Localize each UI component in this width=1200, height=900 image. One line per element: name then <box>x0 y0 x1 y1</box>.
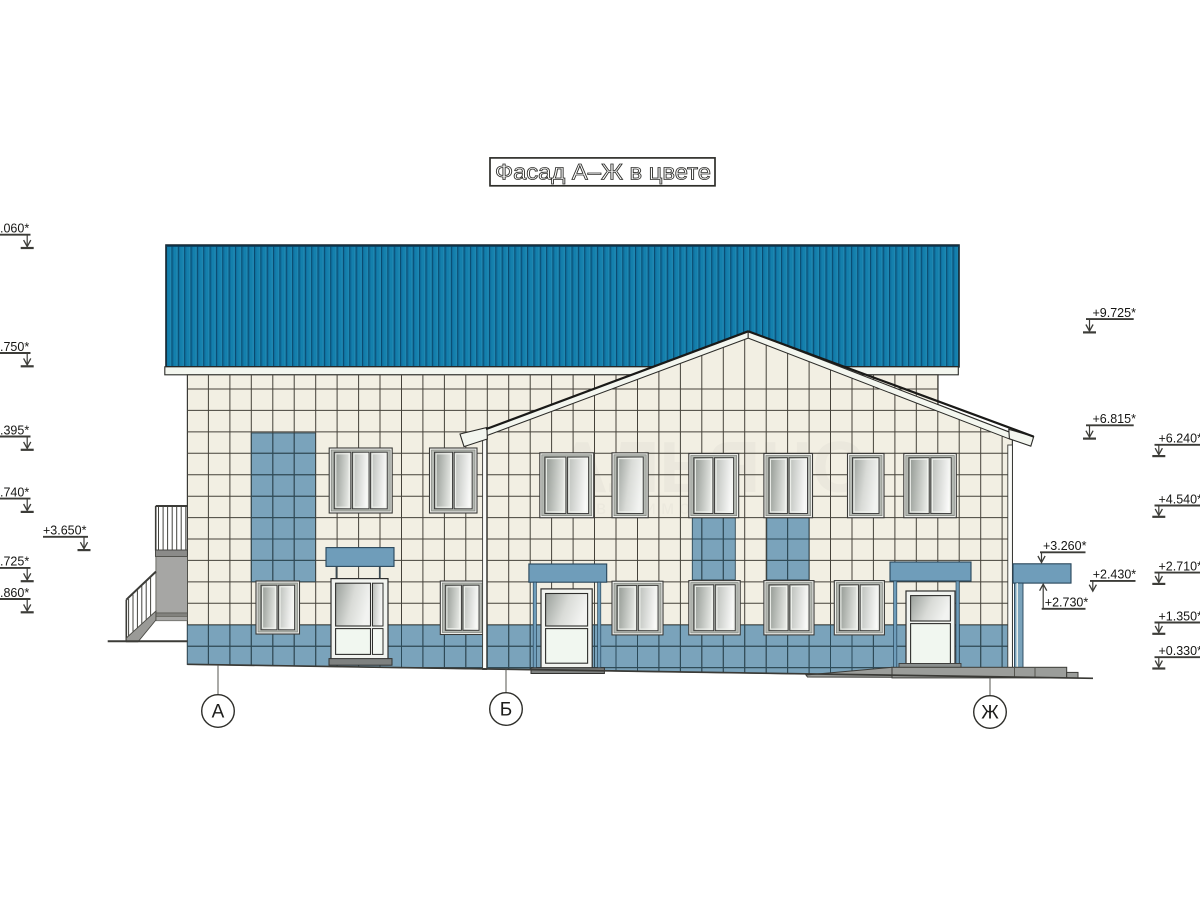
svg-text:.750*: .750* <box>0 340 29 354</box>
svg-text:+3.260*: +3.260* <box>1043 539 1087 553</box>
svg-text:.860*: .860* <box>0 586 29 600</box>
svg-text:+3.650*: +3.650* <box>43 524 87 538</box>
svg-text:.725*: .725* <box>0 555 29 569</box>
svg-text:+2.730*: +2.730* <box>1045 596 1089 610</box>
svg-text:+9.725*: +9.725* <box>1093 306 1137 320</box>
svg-text:+4.540*: +4.540* <box>1159 492 1200 506</box>
svg-text:+6.815*: +6.815* <box>1093 412 1137 426</box>
svg-text:+2.710*: +2.710* <box>1159 559 1200 573</box>
svg-text:+6.240*: +6.240* <box>1159 432 1200 446</box>
svg-text:+0.330*: +0.330* <box>1159 644 1200 658</box>
svg-text:.060*: .060* <box>0 222 29 236</box>
svg-text:.395*: .395* <box>0 423 29 437</box>
svg-text:Ж: Ж <box>981 703 999 724</box>
svg-text:Б: Б <box>500 700 512 721</box>
svg-text:.740*: .740* <box>0 485 29 499</box>
svg-text:А: А <box>212 702 225 723</box>
svg-text:+2.430*: +2.430* <box>1093 568 1137 582</box>
svg-text:Фасад А–Ж в цвете: Фасад А–Ж в цвете <box>495 160 711 185</box>
svg-text:+1.350*: +1.350* <box>1159 609 1200 623</box>
